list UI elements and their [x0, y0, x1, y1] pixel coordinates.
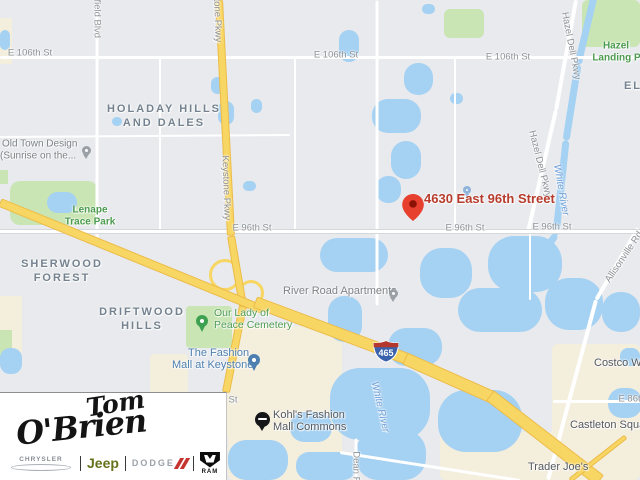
map-label: E 96th St: [532, 222, 571, 233]
map-label: Lenape: [72, 205, 107, 216]
map-label: Castleton Square: [570, 419, 640, 431]
destination-marker-icon[interactable]: [402, 194, 424, 226]
map-label: (Sunrise on the...: [0, 151, 76, 162]
map-label: Keystone Pkwy: [219, 155, 232, 220]
map-label: River Road Apartments: [283, 285, 397, 297]
map-label: FOREST: [34, 272, 91, 284]
interstate-465-shield-icon: 465: [372, 340, 400, 363]
park-area: [444, 9, 484, 38]
green-pin-part: [199, 326, 205, 332]
water-body: [602, 292, 640, 332]
water-body: [228, 440, 288, 480]
water-body: [450, 93, 463, 104]
kohls-pin-part: [258, 418, 267, 420]
map-label: Landing Park: [592, 53, 640, 64]
brand-logos-row: CHRYSLER Jeep DODGE RAM: [8, 450, 220, 476]
park-area: [0, 170, 8, 184]
ram-logo: RAM: [200, 452, 220, 475]
map-label: Dean Rd: [351, 451, 362, 480]
map-label: EL: [624, 80, 640, 92]
water-body: [296, 452, 356, 480]
dodge-wordmark: DODGE: [132, 458, 175, 468]
shop-pin-part: [252, 358, 256, 362]
brand-divider: [125, 456, 127, 471]
map-label: DRIFTWOOD: [99, 306, 185, 318]
kohls-pin-part: [259, 426, 265, 431]
dealer-name-line2: O'Brien: [14, 401, 148, 452]
map-label: Hazel: [603, 41, 629, 52]
map-label: AND DALES: [123, 117, 205, 129]
water-body: [0, 348, 22, 374]
ram-horns-icon: [204, 455, 216, 463]
chrysler-logo: CHRYSLER: [8, 456, 74, 471]
ram-shield-icon: [200, 452, 220, 468]
brand-divider: [193, 456, 195, 471]
map-label: E 106th St: [8, 48, 52, 59]
map-label: E 96th St: [445, 223, 484, 234]
map-label: Peace Cemetery: [214, 319, 292, 331]
ram-wordmark: RAM: [202, 469, 219, 475]
gray-pin-part: [85, 149, 88, 152]
water-body: [404, 63, 433, 95]
chrysler-wordmark: CHRYSLER: [19, 456, 63, 463]
map-label: Westfield Blvd: [92, 0, 103, 38]
map-label: Mall at Keystone: [172, 359, 253, 371]
water-body: [422, 4, 435, 14]
road: [529, 232, 531, 300]
gray-pin-part: [390, 297, 396, 302]
map-label: Our Lady of: [214, 307, 269, 319]
water-body: [391, 141, 421, 179]
dealer-logo: Tom O'Brien CHRYSLER Jeep DODGE RAM: [0, 392, 227, 480]
destination-address-label: 4630 East 96th Street: [424, 191, 555, 206]
map-label: Costco Wholesale: [594, 357, 640, 369]
dodge-logo: DODGE: [132, 458, 187, 469]
map-label: Mall Commons: [273, 421, 346, 433]
gray-pin-part: [83, 154, 89, 159]
map-label: Kohl's Fashion: [273, 409, 345, 421]
road: [159, 57, 161, 231]
map-label: Old Town Design: [2, 139, 77, 150]
map-label: Trader Joe's: [528, 461, 588, 473]
water-body: [372, 99, 421, 133]
map-label: E 96th St: [232, 223, 271, 234]
map-label: Allisonville Rd: [603, 229, 640, 284]
green-pin-part: [200, 319, 204, 323]
map[interactable]: 4630 East 96th Street 465 Tom O'Brien CH…: [0, 0, 640, 480]
map-label: E 106th St: [314, 50, 358, 61]
road: [294, 57, 296, 231]
water-body: [420, 248, 472, 298]
map-label: Keystone Pkwy: [210, 0, 223, 43]
map-label: E 86th St: [618, 394, 640, 405]
map-label: The Fashion: [188, 347, 249, 359]
water-body: [251, 99, 262, 113]
shop-pin-part: [251, 365, 257, 371]
map-label: White River: [551, 164, 571, 217]
road: [0, 134, 290, 138]
brand-divider: [80, 456, 82, 471]
map-label: E 106th St: [486, 52, 530, 63]
map-label: SHERWOOD: [21, 258, 103, 270]
map-label: HOLADAY HILLS: [107, 103, 221, 115]
gray-pin-part: [392, 292, 395, 295]
shield-number: 465: [372, 348, 400, 358]
water-body: [376, 176, 401, 203]
road: [376, 0, 379, 305]
water-body: [112, 117, 122, 126]
chrysler-wing-icon: [11, 464, 71, 471]
jeep-logo: Jeep: [87, 455, 119, 471]
map-label: HILLS: [121, 320, 163, 332]
water-body: [243, 181, 256, 191]
map-label: Trace Park: [65, 217, 116, 228]
